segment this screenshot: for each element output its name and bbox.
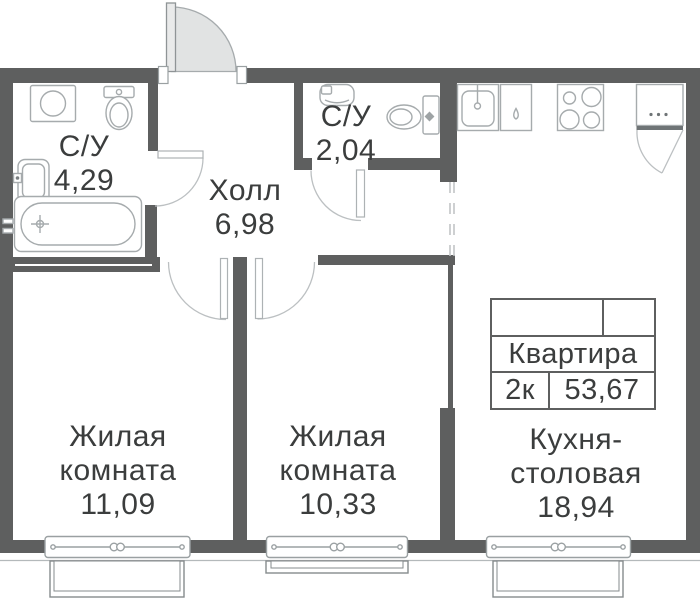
balcony-sill-living2-icon bbox=[266, 561, 408, 573]
room-area: 11,09 bbox=[60, 488, 177, 522]
wall-bottom-between-windows-2 bbox=[406, 540, 487, 553]
balcony-living1-icon bbox=[50, 561, 184, 597]
wall-bathroom-main-right-lower bbox=[145, 205, 157, 258]
room-name: столовая bbox=[510, 457, 642, 491]
bathtub-icon bbox=[3, 197, 142, 252]
sink-icon bbox=[14, 160, 50, 203]
floor-plan: С/У 4,29 С/У 2,04 Холл 6,98 Жилая комнат… bbox=[0, 0, 700, 600]
room-label-hall: Холл 6,98 bbox=[209, 174, 282, 242]
door-bathroom-main-icon bbox=[155, 151, 203, 206]
room-label-living1: Жилая комната 11,09 bbox=[60, 420, 177, 522]
wall-bottom-left-corner bbox=[0, 540, 45, 553]
refrigerator-icon bbox=[637, 85, 684, 174]
wall-living2-kitchen-thick bbox=[440, 408, 455, 540]
wall-right bbox=[686, 83, 700, 553]
toilet-icon bbox=[104, 87, 134, 130]
room-area: 4,29 bbox=[54, 164, 114, 198]
wall-left bbox=[0, 83, 13, 553]
balcony-kitchen-icon bbox=[493, 561, 623, 597]
room-name: Холл bbox=[209, 174, 282, 208]
wall-bathroom-small-left bbox=[294, 83, 303, 170]
table-row-title: Квартира bbox=[492, 337, 654, 374]
wall-bottom-between-windows-1 bbox=[190, 540, 268, 553]
room-name: комната bbox=[280, 454, 397, 488]
table-row-top bbox=[492, 300, 654, 337]
room-area: 2,04 bbox=[316, 134, 376, 168]
wall-bathroom-main-right-upper bbox=[148, 83, 158, 151]
room-label-bathroom-small: С/У 2,04 bbox=[316, 100, 376, 168]
table-row-values: 2к 53,67 bbox=[492, 373, 654, 408]
apartment-type: 2к bbox=[492, 373, 550, 408]
window-living2-icon bbox=[267, 537, 408, 558]
room-area: 10,33 bbox=[280, 488, 397, 522]
room-label-bathroom-main: С/У 4,29 bbox=[54, 130, 114, 198]
wall-living2-kitchen-thin bbox=[448, 265, 453, 408]
entry-door-icon bbox=[159, 3, 247, 84]
door-living1-icon bbox=[169, 259, 228, 320]
dashed-partition bbox=[450, 182, 454, 256]
washing-machine-icon bbox=[31, 86, 76, 122]
room-area: 18,94 bbox=[510, 491, 642, 525]
table-cell-empty-left bbox=[492, 300, 604, 335]
room-label-kitchen: Кухня- столовая 18,94 bbox=[510, 423, 642, 525]
window-kitchen-icon bbox=[487, 537, 631, 558]
door-bathroom-small-icon bbox=[311, 170, 365, 221]
room-area: 6,98 bbox=[209, 208, 282, 242]
room-name: комната bbox=[60, 454, 177, 488]
wall-hall-living2 bbox=[318, 255, 455, 265]
door-living2-icon bbox=[256, 259, 315, 320]
room-name: Жилая bbox=[60, 420, 177, 454]
toilet-small-icon bbox=[387, 96, 439, 134]
room-name: Кухня- bbox=[510, 423, 642, 457]
room-label-living2: Жилая комната 10,33 bbox=[280, 420, 397, 522]
apartment-info-table: Квартира 2к 53,67 bbox=[490, 298, 656, 410]
wall-bedroom-divider bbox=[233, 257, 247, 540]
apartment-title: Квартира bbox=[492, 337, 654, 372]
wall-bathroom-small-bottom-left bbox=[294, 158, 312, 170]
kitchen-sink-icon bbox=[458, 85, 499, 131]
apartment-total-area: 53,67 bbox=[550, 373, 654, 408]
room-name: Жилая bbox=[280, 420, 397, 454]
room-name: С/У bbox=[54, 130, 114, 164]
window-living1-icon bbox=[45, 537, 190, 558]
room-name: С/У bbox=[316, 100, 376, 134]
wall-top-right bbox=[238, 68, 700, 83]
wall-bathroom-small-kitchen bbox=[440, 83, 457, 182]
wall-bottom-right-corner bbox=[630, 540, 700, 553]
stove-icon bbox=[558, 85, 604, 131]
dishwasher-icon bbox=[501, 85, 532, 131]
wall-bathroom-small-bottom-right bbox=[368, 158, 440, 170]
wall-bathroom-main-bottom bbox=[0, 257, 160, 272]
table-cell-empty-right bbox=[604, 300, 654, 335]
wall-top-left bbox=[0, 68, 168, 83]
